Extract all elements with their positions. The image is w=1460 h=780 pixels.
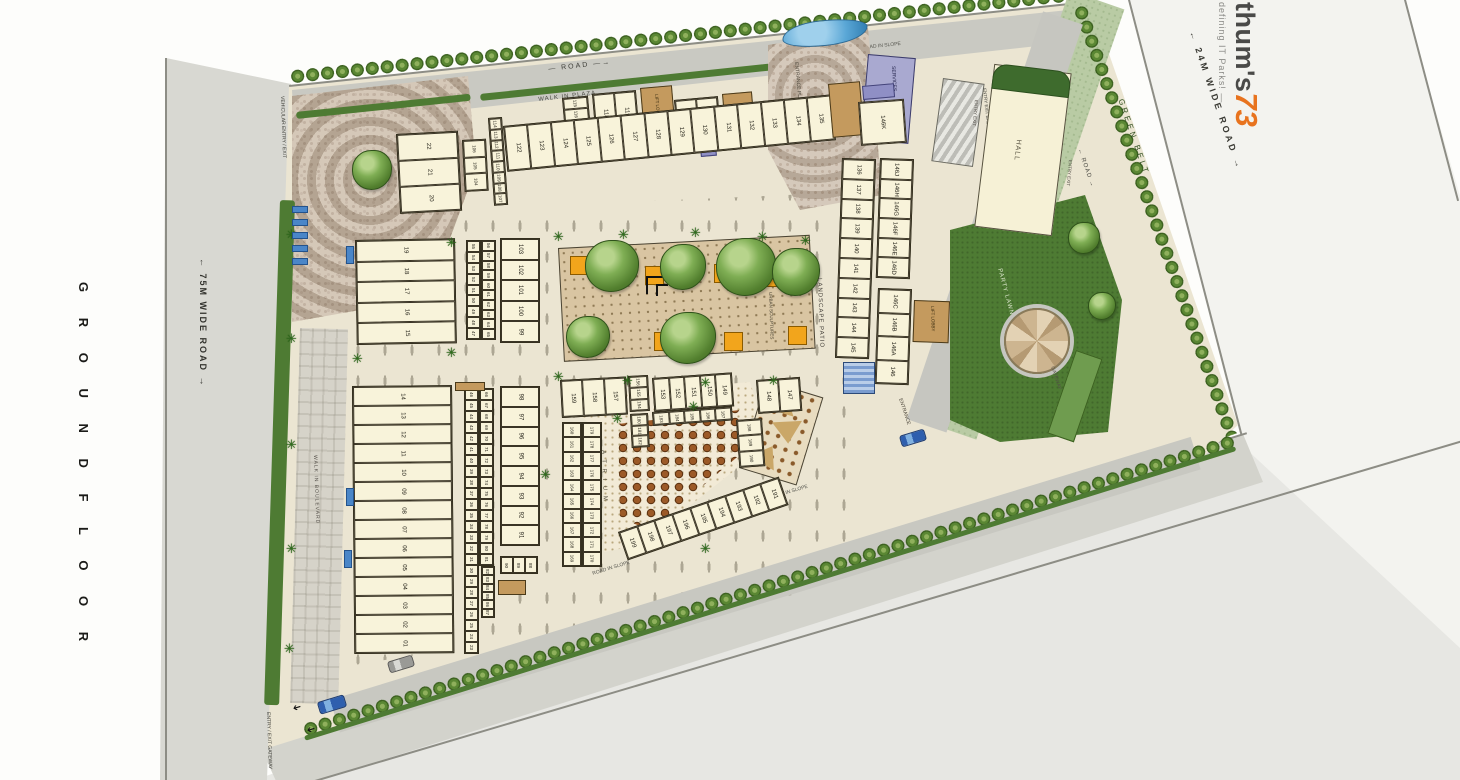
unit-cell: 183 bbox=[653, 412, 669, 425]
unit-cell: 45 bbox=[465, 400, 478, 411]
unit-cell: 161 bbox=[563, 437, 581, 451]
unit-cell: 98 bbox=[501, 387, 539, 407]
unit-cell: 97 bbox=[501, 407, 539, 427]
unit-cell: 18 bbox=[356, 260, 454, 282]
brand-tagline: defining IT Parks! — bbox=[1217, 2, 1227, 103]
unit-cell: 155 bbox=[630, 387, 649, 399]
palm-tree-icon bbox=[286, 332, 297, 345]
unit-cell: 146K bbox=[859, 100, 906, 145]
unit-cell: 146B bbox=[877, 313, 910, 338]
unit-cell: 36 bbox=[465, 499, 478, 510]
hall-entry-exit-left: ENTRY EXIT bbox=[971, 100, 978, 127]
unit-cell: 146 bbox=[876, 359, 909, 384]
unit-cell: 71 bbox=[480, 444, 493, 455]
unit-cell: 80 bbox=[480, 543, 493, 554]
unit-cell: 95 bbox=[501, 446, 539, 466]
unit-stack-180-182: 180181182 bbox=[630, 413, 650, 448]
unit-cell: 57 bbox=[482, 251, 495, 261]
shade-sail-icon bbox=[772, 421, 803, 445]
unit-cell: 178 bbox=[583, 437, 601, 451]
unit-cell: 75 bbox=[480, 488, 493, 499]
unit-cell: 184 bbox=[669, 411, 685, 424]
unit-cell: 164 bbox=[563, 480, 581, 494]
unit-stack-146C-146: 146C146B146A146 bbox=[875, 288, 912, 385]
bench-icon bbox=[292, 219, 308, 226]
unit-cell: 65 bbox=[482, 329, 495, 339]
unit-strip-56-65: 56575859606162636465 bbox=[481, 240, 496, 340]
unit-block-14-01: 1413121110090807060504030201 bbox=[352, 385, 454, 654]
unit-cell: 86 bbox=[482, 600, 494, 608]
unit-cell: 28 bbox=[465, 587, 478, 598]
palm-tree-icon bbox=[446, 346, 457, 359]
unit-strip-46-23: 4645444342414039383736353433323130292827… bbox=[464, 388, 479, 654]
bench-planter bbox=[455, 382, 485, 391]
palm-tree-icon bbox=[553, 370, 564, 383]
brand-name: thum's bbox=[1231, 2, 1258, 92]
unit-cell: 39 bbox=[465, 466, 478, 477]
palm-tree-icon bbox=[540, 468, 551, 481]
unit-cell: 91 bbox=[501, 525, 539, 545]
vehicular-entry-exit-label: VEHICULAR ENTRY / EXIT bbox=[279, 96, 286, 158]
unit-cell: 60 bbox=[482, 280, 495, 290]
unit-cell: 143 bbox=[837, 298, 870, 319]
bench-icon bbox=[344, 550, 352, 568]
unit-cell: 27 bbox=[465, 598, 478, 609]
unit-cell: 136 bbox=[842, 159, 875, 180]
unit-cell: 02 bbox=[355, 614, 453, 634]
unit-strip-66-81: 66676869707172737475767778798081 bbox=[479, 388, 494, 566]
brand-logo: thum's 73 defining IT Parks! — bbox=[1217, 2, 1262, 127]
unit-strip-179-170: 179178177176175174173172171170 bbox=[582, 422, 602, 567]
unit-cell: 89 bbox=[513, 557, 525, 573]
unit-cell: 63 bbox=[482, 310, 495, 320]
unit-cell: 59 bbox=[482, 270, 495, 280]
unit-cell: 170 bbox=[583, 552, 601, 566]
unit-cell: 142 bbox=[838, 278, 871, 299]
unit-cell: 106 bbox=[463, 140, 486, 158]
unit-cell: 107 bbox=[494, 193, 507, 205]
unit-cell: 30 bbox=[465, 565, 478, 576]
unit-cell: 15 bbox=[357, 322, 455, 344]
unit-cell: 26 bbox=[465, 609, 478, 620]
unit-pair-148-147: 148147 bbox=[756, 377, 802, 414]
palm-tree-icon bbox=[800, 234, 811, 247]
unit-cell: 33 bbox=[465, 532, 478, 543]
unit-cell: 102 bbox=[501, 260, 539, 281]
brand-number: 73 bbox=[1231, 92, 1262, 126]
palm-tree-icon bbox=[618, 228, 629, 241]
unit-col-136-145: 136137138139140141142143144145 bbox=[835, 158, 876, 359]
unit-cell: 01 bbox=[355, 633, 453, 653]
unit-cell: 146E bbox=[878, 238, 911, 259]
unit-cell: 38 bbox=[465, 477, 478, 488]
unit-cell: 20 bbox=[400, 184, 461, 213]
unit-cell: 09 bbox=[354, 481, 452, 501]
unit-cell: 48 bbox=[467, 317, 480, 328]
unit-cell: 73 bbox=[480, 466, 493, 477]
unit-cell: 11 bbox=[354, 443, 452, 463]
palm-tree-icon bbox=[700, 376, 711, 389]
unit-cell: 72 bbox=[480, 455, 493, 466]
unit-cell: 176 bbox=[583, 466, 601, 480]
unit-cell: 167 bbox=[563, 523, 581, 537]
palm-tree-icon bbox=[446, 236, 457, 249]
unit-cell: 68 bbox=[480, 411, 493, 422]
unit-cell: 105 bbox=[464, 156, 487, 174]
unit-cell: 14 bbox=[353, 386, 451, 406]
unit-cell: 22 bbox=[397, 132, 458, 161]
bench-icon bbox=[346, 488, 354, 506]
unit-cell: 144 bbox=[837, 317, 870, 338]
unit-cell: 17 bbox=[357, 280, 455, 302]
unit-cell: 04 bbox=[355, 576, 453, 596]
unit-cell: 25 bbox=[465, 620, 478, 631]
unit-cell: 37 bbox=[465, 488, 478, 499]
unit-cell: 74 bbox=[480, 477, 493, 488]
palm-tree-icon bbox=[688, 400, 699, 413]
unit-cell: 79 bbox=[480, 532, 493, 543]
unit-cell: 67 bbox=[480, 400, 493, 411]
palm-tree-icon bbox=[612, 412, 623, 425]
unit-cell: 100 bbox=[501, 301, 539, 322]
entry-exit-gateway-label: ENTRY / EXIT GATEWAY bbox=[265, 712, 272, 770]
unit-stack-106-104: 106105104 bbox=[462, 139, 489, 192]
unit-cell: 90 bbox=[501, 557, 513, 573]
unit-cell: 07 bbox=[354, 519, 452, 539]
unit-cell: 177 bbox=[583, 452, 601, 466]
unit-cell: 139 bbox=[840, 218, 873, 239]
unit-cell: 43 bbox=[465, 422, 478, 433]
unit-cell: 40 bbox=[465, 455, 478, 466]
unit-cell: 56 bbox=[482, 241, 495, 251]
bench-icon bbox=[292, 258, 308, 265]
unit-cell: 78 bbox=[480, 521, 493, 532]
unit-cell: 32 bbox=[465, 543, 478, 554]
unit-cell: 21 bbox=[398, 158, 459, 187]
unit-cell: 146H bbox=[880, 179, 913, 200]
walk-in-boulevard-label: WALK IN BOULEVARD bbox=[312, 455, 319, 524]
unit-cell: 174 bbox=[583, 494, 601, 508]
unit-cell: 190 bbox=[739, 450, 764, 467]
unit-cell: 182 bbox=[632, 435, 649, 446]
unit-cell: 146C bbox=[878, 289, 911, 314]
unit-cell: 61 bbox=[482, 290, 495, 300]
bench-icon bbox=[292, 232, 308, 239]
unit-strip-160-169: 160161162163164165166167168169 bbox=[562, 422, 582, 567]
unit-cell: 163 bbox=[563, 466, 581, 480]
planter-square bbox=[724, 332, 743, 351]
unit-col-146J-146D: 146J146H146G146F146E146D bbox=[876, 158, 914, 279]
unit-cell: 87 bbox=[482, 609, 494, 617]
site-plan: ← 24M WIDE ROAD → 12M WIDE ROAD → ← 75M … bbox=[0, 0, 1460, 780]
unit-cell: 06 bbox=[354, 538, 452, 558]
planter-square bbox=[788, 326, 807, 345]
unit-cell: 34 bbox=[465, 521, 478, 532]
unit-cell: 159 bbox=[561, 380, 584, 417]
unit-cell: 35 bbox=[465, 510, 478, 521]
unit-cell: 13 bbox=[353, 405, 451, 425]
unit-cell: 171 bbox=[583, 537, 601, 551]
unit-cell: 53 bbox=[467, 263, 480, 274]
unit-cell: 84 bbox=[482, 584, 494, 592]
unit-cell: 101 bbox=[501, 280, 539, 301]
unit-cell: 08 bbox=[354, 500, 452, 520]
lift-lobby-label-2: LIFT LOBBY bbox=[930, 306, 935, 332]
unit-cell: 83 bbox=[482, 575, 494, 583]
unit-cell: 10 bbox=[354, 462, 452, 482]
unit-cell: 165 bbox=[563, 494, 581, 508]
unit-cell: 69 bbox=[480, 422, 493, 433]
unit-cell: 146D bbox=[877, 257, 910, 278]
unit-cell: 42 bbox=[465, 433, 478, 444]
lift-lobby-south bbox=[498, 580, 526, 595]
unit-cell: 145 bbox=[836, 337, 869, 358]
unit-cell: 149 bbox=[715, 373, 733, 406]
unit-cell: 189 bbox=[738, 435, 763, 452]
unit-col-188-190: 188189190 bbox=[736, 418, 765, 468]
unit-cell: 54 bbox=[467, 252, 480, 263]
unit-block-22-20: 222120 bbox=[396, 131, 462, 214]
unit-block-98-91: 9897969594939291 bbox=[500, 386, 540, 546]
gateway-mandala bbox=[1004, 308, 1070, 374]
palm-tree-icon bbox=[352, 352, 363, 365]
unit-cell: 146F bbox=[878, 218, 911, 239]
unit-cell: 24 bbox=[465, 631, 478, 642]
unit-cell: 166 bbox=[563, 509, 581, 523]
sculpture-icon bbox=[656, 284, 668, 296]
bench-icon bbox=[292, 245, 308, 252]
palm-tree-icon bbox=[700, 542, 711, 555]
unit-cell: 29 bbox=[465, 576, 478, 587]
unit-cell: 92 bbox=[501, 506, 539, 526]
unit-cell: 186 bbox=[700, 409, 716, 422]
unit-cell: 96 bbox=[501, 427, 539, 447]
unit-cell: 138 bbox=[841, 199, 874, 220]
bench-icon bbox=[292, 206, 308, 213]
unit-cell: 169 bbox=[563, 552, 581, 566]
palm-tree-icon bbox=[286, 438, 297, 451]
unit-cell: 47 bbox=[467, 328, 480, 339]
unit-cell: 77 bbox=[480, 510, 493, 521]
unit-cell: 154 bbox=[630, 399, 649, 411]
unit-cell: 103 bbox=[501, 239, 539, 260]
unit-cell-146K: 146K bbox=[858, 99, 907, 146]
road-75m-label: ← 75M WIDE ROAD → bbox=[198, 258, 207, 388]
unit-cell: 179 bbox=[583, 423, 601, 437]
unit-cell: 49 bbox=[467, 306, 480, 317]
unit-row-90-88: 908988 bbox=[500, 556, 538, 574]
unit-cell: 62 bbox=[482, 300, 495, 310]
unit-cell: 146G bbox=[879, 198, 912, 219]
unit-cell: 137 bbox=[842, 179, 875, 200]
unit-cell: 175 bbox=[583, 480, 601, 494]
unit-cell: 146A bbox=[877, 336, 910, 361]
unit-cell: 64 bbox=[482, 319, 495, 329]
road-75m-left-edge bbox=[165, 58, 167, 780]
unit-block-19-15: 1918171615 bbox=[355, 238, 457, 345]
unit-cell: 58 bbox=[482, 261, 495, 271]
toilets-block bbox=[843, 362, 875, 394]
unit-strip-55-47: 555453525150494847 bbox=[466, 240, 481, 340]
toilet-tile bbox=[862, 83, 895, 100]
unit-cell: 19 bbox=[356, 239, 454, 261]
unit-cell: 23 bbox=[465, 642, 478, 653]
unit-cell: 188 bbox=[737, 419, 762, 436]
unit-cell: 70 bbox=[480, 433, 493, 444]
unit-cell: 81 bbox=[480, 554, 493, 565]
palm-tree-icon bbox=[690, 226, 701, 239]
unit-cell: 158 bbox=[582, 379, 605, 416]
palm-tree-icon bbox=[622, 374, 633, 387]
unit-cell: 147 bbox=[778, 378, 801, 411]
unit-cell: 76 bbox=[480, 499, 493, 510]
palm-tree-icon bbox=[286, 542, 297, 555]
unit-cell: 51 bbox=[467, 285, 480, 296]
urban-sculptures-label: URBAN SCULPTURES bbox=[768, 292, 774, 339]
floor-title: G R O U N D F L O O R bbox=[77, 282, 90, 652]
unit-strip-82-87: 828384858687 bbox=[481, 566, 495, 618]
unit-cell: 16 bbox=[357, 301, 455, 323]
bench-icon bbox=[346, 246, 354, 264]
unit-cell: 12 bbox=[353, 424, 451, 444]
unit-cell: 05 bbox=[355, 557, 453, 577]
unit-cell: 104 bbox=[465, 173, 488, 191]
unit-cell: 03 bbox=[355, 595, 453, 615]
unit-cell: 82 bbox=[482, 567, 494, 575]
unit-cell: 168 bbox=[563, 537, 581, 551]
palm-tree-icon bbox=[768, 374, 779, 387]
unit-cell: 160 bbox=[563, 423, 581, 437]
unit-cell: 146J bbox=[880, 159, 913, 180]
palm-tree-icon bbox=[284, 642, 295, 655]
unit-cell: 31 bbox=[465, 554, 478, 565]
unit-cell: 93 bbox=[501, 486, 539, 506]
palm-tree-icon bbox=[553, 230, 564, 243]
unit-cell: 85 bbox=[482, 592, 494, 600]
unit-cell: 44 bbox=[465, 411, 478, 422]
unit-cell: 162 bbox=[563, 452, 581, 466]
unit-cell: 187 bbox=[715, 407, 731, 420]
hall-entry-exit-right: ENTRY EXIT bbox=[1065, 160, 1072, 187]
unit-cell: 172 bbox=[583, 523, 601, 537]
unit-cell: 140 bbox=[840, 238, 873, 259]
unit-cell: 50 bbox=[467, 295, 480, 306]
unit-cell: 52 bbox=[467, 274, 480, 285]
unit-cell: 94 bbox=[501, 466, 539, 486]
unit-cell: 173 bbox=[583, 509, 601, 523]
unit-cell: 55 bbox=[467, 241, 480, 252]
unit-cell: 41 bbox=[465, 444, 478, 455]
palm-tree-icon bbox=[757, 230, 768, 243]
unit-cell: 88 bbox=[525, 557, 537, 573]
unit-cell: 99 bbox=[501, 321, 539, 342]
unit-block-103-99: 10310210110099 bbox=[500, 238, 540, 343]
unit-cell: 141 bbox=[839, 258, 872, 279]
